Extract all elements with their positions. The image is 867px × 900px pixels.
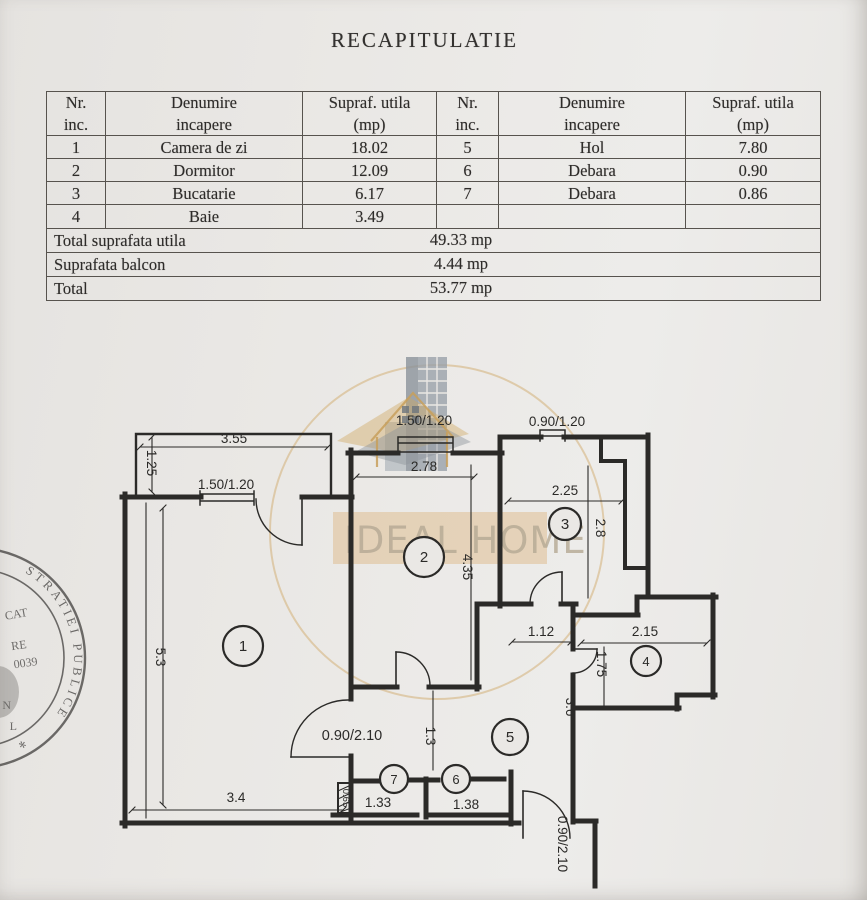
dim-room7-width: 1.33	[365, 795, 391, 810]
room-marker-3: 3	[549, 508, 581, 540]
room-label-3: 3	[561, 516, 569, 533]
stamp-line-re: RE	[10, 637, 27, 653]
room-marker-2: 2	[404, 537, 444, 577]
dim-shaft: 0.65	[340, 789, 351, 808]
dim-window-room3: 0.90/1.20	[529, 414, 585, 429]
dim-room2-height: 4.35	[460, 554, 475, 580]
stamp-line-n: N	[2, 698, 11, 712]
room-label-2: 2	[420, 549, 428, 566]
dim-room2-width: 2.78	[411, 459, 437, 474]
stamp-line-l: L	[10, 719, 17, 733]
room-marker-1: 1	[223, 626, 263, 666]
room-marker-7: 7	[380, 765, 408, 793]
dim-room3-height: 2.8	[593, 519, 608, 538]
dim-balcony-width: 3.55	[221, 431, 247, 446]
room-marker-6: 6	[442, 765, 470, 793]
stamp-line-cat: CAT	[4, 605, 29, 623]
dim-door-room1: 0.90/2.10	[322, 728, 382, 744]
room-label-1: 1	[239, 638, 247, 655]
scanned-page: RECAPITULATIE Nr.inc. Denumireincapere S…	[0, 0, 867, 900]
dim-3-6: 3.6	[563, 698, 578, 717]
dim-room4-height: 1.75	[594, 651, 609, 677]
floor-plan-layer: IDEAL HOME STRATIEI PUBLICE CAT RE 0039 …	[0, 0, 867, 900]
room-marker-5: 5	[492, 719, 528, 755]
room-marker-4: 4	[631, 646, 661, 676]
dim-room1-height: 5.3	[153, 648, 168, 667]
dim-window-room2: 1.50/1.20	[396, 413, 452, 428]
room-label-4: 4	[642, 654, 649, 669]
dim-1-3: 1.3	[423, 727, 438, 746]
dim-entry-door: 0.90/2.10	[555, 816, 570, 872]
dim-room4-width: 2.15	[632, 624, 658, 639]
dim-balcony-depth: 1.25	[144, 450, 159, 476]
stamp-line-0039: 0039	[13, 654, 39, 671]
room-label-7: 7	[390, 772, 397, 787]
dim-room1-width: 3.4	[227, 790, 246, 805]
room-label-6: 6	[452, 772, 459, 787]
room-label-5: 5	[506, 729, 514, 746]
dim-window-room1: 1.50/1.20	[198, 477, 254, 492]
notary-stamp: STRATIEI PUBLICE CAT RE 0039 N L *	[0, 548, 85, 768]
dim-passage: 1.12	[528, 624, 554, 639]
dim-room3-width: 2.25	[552, 483, 578, 498]
dim-room6-width: 1.38	[453, 797, 479, 812]
floor-plan	[122, 430, 716, 886]
walls-notch	[601, 437, 648, 568]
